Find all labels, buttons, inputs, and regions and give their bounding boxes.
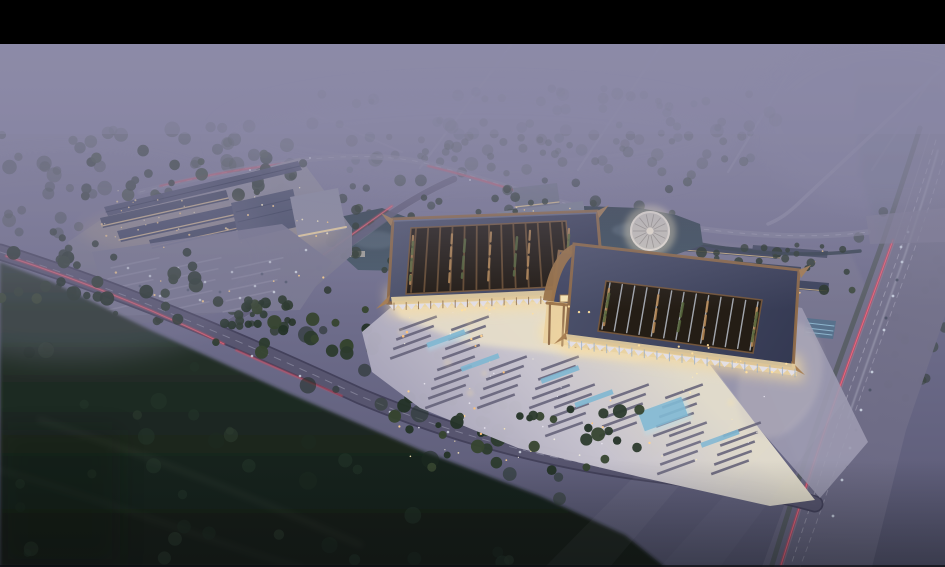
plaza-people bbox=[504, 428, 506, 430]
facade-lights bbox=[745, 371, 747, 373]
tree-line bbox=[212, 338, 220, 346]
forest-trees bbox=[190, 362, 200, 372]
tree-line bbox=[632, 443, 642, 453]
tree-line bbox=[444, 452, 451, 459]
plaza-people bbox=[469, 402, 471, 404]
plaza-people bbox=[683, 390, 684, 391]
facade-lights bbox=[740, 360, 742, 362]
tree-line bbox=[278, 325, 288, 335]
tree-line bbox=[567, 406, 575, 414]
letterbox-top-bar bbox=[0, 0, 945, 44]
forest-trees bbox=[332, 386, 339, 393]
tree-line bbox=[340, 346, 353, 359]
facade-lights bbox=[678, 346, 680, 348]
plaza-lights bbox=[475, 345, 477, 347]
plaza-people bbox=[484, 427, 486, 429]
plaza-people bbox=[469, 388, 470, 389]
tree-line bbox=[528, 411, 538, 421]
plaza-people bbox=[404, 343, 405, 344]
tree-line bbox=[439, 431, 447, 439]
plaza-people bbox=[490, 376, 491, 377]
cars-highway bbox=[860, 409, 863, 412]
plaza-people bbox=[561, 387, 562, 388]
tree-line bbox=[405, 425, 413, 433]
corner-shade bbox=[0, 430, 120, 567]
plaza-people bbox=[689, 392, 691, 394]
tree-line bbox=[604, 427, 613, 436]
plaza-people bbox=[748, 442, 749, 443]
forest-trees bbox=[208, 432, 224, 448]
tree-line bbox=[456, 413, 464, 421]
tree-line bbox=[634, 405, 644, 415]
plaza-people bbox=[692, 377, 693, 378]
plaza-lights bbox=[503, 371, 505, 373]
forest-trees bbox=[301, 434, 316, 449]
plaza-people bbox=[444, 449, 445, 450]
plaza-people bbox=[418, 427, 420, 429]
plaza-people bbox=[518, 457, 519, 458]
plaza-light-glow bbox=[481, 370, 487, 376]
forest-trees bbox=[319, 326, 327, 334]
tree-line bbox=[306, 313, 319, 326]
plaza-lights bbox=[470, 338, 472, 340]
plaza-light-glow bbox=[444, 359, 452, 367]
plaza-people bbox=[756, 431, 758, 433]
facade-lights bbox=[708, 347, 710, 349]
scene-svg bbox=[0, 0, 945, 567]
tree-line bbox=[471, 440, 485, 454]
tree-line bbox=[613, 404, 627, 418]
tree-line bbox=[516, 412, 524, 420]
tree-line bbox=[326, 345, 338, 357]
plaza-lights bbox=[473, 407, 475, 409]
plaza-light-glow bbox=[727, 399, 734, 406]
tree-line bbox=[332, 319, 340, 327]
forest-trees bbox=[358, 364, 371, 377]
plaza-light-glow bbox=[398, 328, 405, 335]
plaza-people bbox=[553, 438, 555, 440]
facade-lights bbox=[588, 311, 590, 313]
forest-trees bbox=[138, 428, 155, 445]
cars-highway-dark bbox=[869, 389, 872, 392]
plaza-people bbox=[489, 362, 490, 363]
tree-line bbox=[529, 441, 540, 452]
cars-highway-dark bbox=[885, 317, 888, 320]
campus-south-trees bbox=[288, 318, 296, 326]
forest-trees bbox=[80, 400, 89, 409]
plaza-people bbox=[450, 333, 452, 335]
tree-line bbox=[388, 410, 401, 423]
campus-south-trees bbox=[236, 322, 244, 330]
plaza-lights bbox=[407, 390, 409, 392]
tree-line bbox=[435, 422, 441, 428]
cars-front-road bbox=[447, 431, 450, 434]
forest-trees bbox=[226, 427, 234, 435]
tree-line bbox=[255, 346, 268, 359]
plaza-people bbox=[601, 443, 603, 445]
plaza-people bbox=[458, 452, 460, 454]
forest-trees bbox=[375, 398, 388, 411]
facade-lights bbox=[532, 313, 534, 315]
plaza-people bbox=[424, 383, 426, 385]
plaza-people bbox=[410, 456, 412, 458]
forest-trees bbox=[300, 377, 316, 393]
fog-patch bbox=[220, 90, 740, 190]
tree-line bbox=[584, 424, 592, 432]
plaza-people bbox=[493, 373, 495, 375]
plaza-people bbox=[557, 396, 558, 397]
plaza-lights bbox=[480, 335, 483, 338]
tree-line bbox=[254, 320, 262, 328]
plaza-lights bbox=[406, 331, 409, 334]
plaza-people bbox=[764, 396, 765, 397]
tree-line bbox=[311, 335, 319, 343]
forest-trees bbox=[133, 410, 142, 419]
plaza-people bbox=[409, 317, 410, 318]
plaza-people bbox=[489, 313, 490, 314]
plaza-people bbox=[696, 373, 698, 375]
facade-lights bbox=[771, 371, 773, 373]
facade-lights bbox=[785, 363, 787, 365]
plaza-people bbox=[454, 441, 455, 442]
facade-lights bbox=[578, 311, 580, 313]
plaza-people bbox=[542, 426, 544, 428]
facade-lights bbox=[638, 344, 640, 346]
tree-line bbox=[245, 321, 252, 328]
tree-line bbox=[598, 408, 608, 418]
cars-highway bbox=[883, 329, 886, 332]
plaza-people bbox=[532, 358, 533, 359]
cars-front-road bbox=[299, 375, 302, 378]
tree-line bbox=[591, 427, 605, 441]
cars-highway bbox=[871, 371, 874, 374]
plaza-lights bbox=[591, 422, 593, 424]
bottom-vignette bbox=[0, 460, 945, 567]
tree-line bbox=[613, 436, 621, 444]
tree-line bbox=[550, 416, 558, 424]
plaza-light-glow bbox=[466, 318, 474, 326]
cars-front-road bbox=[519, 451, 522, 454]
plaza-light-glow bbox=[467, 389, 474, 396]
plaza-lights bbox=[610, 400, 612, 402]
facade-lights bbox=[691, 352, 693, 354]
plaza-lights bbox=[602, 426, 604, 428]
facade-lights bbox=[707, 344, 709, 346]
architectural-rendering bbox=[0, 0, 945, 567]
plaza-people bbox=[579, 454, 581, 456]
plaza-lights bbox=[398, 425, 400, 427]
forest-trees bbox=[188, 409, 199, 420]
tree-line bbox=[580, 433, 592, 445]
plaza-lights bbox=[480, 433, 482, 435]
plaza-lights bbox=[402, 335, 405, 338]
plaza-people bbox=[732, 419, 733, 420]
cars-front-road bbox=[251, 355, 254, 358]
forest-trees bbox=[151, 393, 167, 409]
facade-lights bbox=[736, 362, 738, 364]
plaza-lights bbox=[648, 442, 650, 444]
